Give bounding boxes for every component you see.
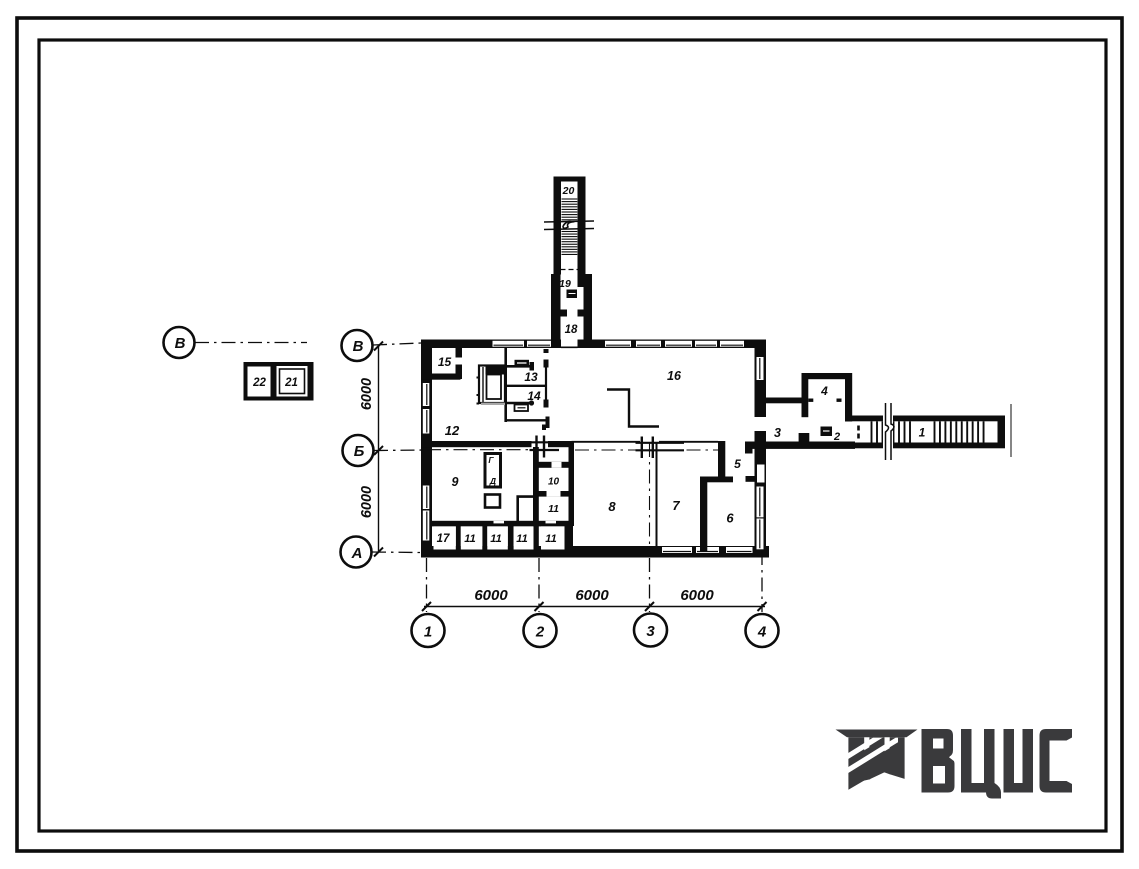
svg-text:14: 14 bbox=[527, 389, 541, 403]
svg-text:18: 18 bbox=[565, 324, 578, 336]
svg-text:2: 2 bbox=[833, 431, 840, 443]
svg-text:15: 15 bbox=[438, 355, 452, 369]
svg-text:1: 1 bbox=[919, 426, 926, 440]
svg-text:17: 17 bbox=[437, 533, 450, 545]
svg-text:А: А bbox=[351, 545, 363, 562]
svg-text:Б: Б bbox=[354, 443, 365, 460]
svg-text:Д: Д bbox=[489, 476, 496, 486]
svg-text:3: 3 bbox=[774, 426, 781, 440]
svg-text:22: 22 bbox=[252, 377, 266, 389]
svg-text:19: 19 bbox=[559, 278, 571, 290]
svg-text:В: В bbox=[353, 338, 364, 355]
svg-text:6000: 6000 bbox=[575, 587, 609, 604]
svg-text:В: В bbox=[175, 335, 186, 352]
svg-text:8: 8 bbox=[608, 499, 616, 514]
svg-text:13: 13 bbox=[524, 370, 538, 384]
svg-text:11: 11 bbox=[516, 533, 527, 545]
svg-text:20: 20 bbox=[562, 185, 575, 197]
svg-text:16: 16 bbox=[667, 369, 682, 383]
svg-text:4: 4 bbox=[820, 384, 828, 398]
svg-text:11: 11 bbox=[490, 533, 501, 545]
svg-text:4: 4 bbox=[757, 624, 767, 641]
svg-text:11: 11 bbox=[548, 503, 559, 515]
svg-text:Г: Г bbox=[488, 455, 494, 465]
svg-text:2: 2 bbox=[535, 624, 545, 641]
svg-text:11: 11 bbox=[464, 533, 475, 545]
svg-text:6000: 6000 bbox=[474, 587, 508, 604]
svg-text:6000: 6000 bbox=[359, 378, 375, 410]
svg-text:9: 9 bbox=[452, 475, 459, 489]
svg-text:6: 6 bbox=[726, 511, 734, 526]
svg-text:21: 21 bbox=[284, 377, 298, 389]
svg-text:3: 3 bbox=[646, 623, 655, 640]
svg-text:10: 10 bbox=[548, 477, 560, 488]
svg-text:1: 1 bbox=[424, 624, 432, 641]
svg-text:6000: 6000 bbox=[359, 486, 375, 518]
svg-text:7: 7 bbox=[672, 498, 680, 513]
svg-text:5: 5 bbox=[734, 457, 741, 471]
svg-text:11: 11 bbox=[545, 533, 556, 545]
svg-text:12: 12 bbox=[445, 423, 460, 438]
svg-text:6000: 6000 bbox=[680, 587, 714, 604]
